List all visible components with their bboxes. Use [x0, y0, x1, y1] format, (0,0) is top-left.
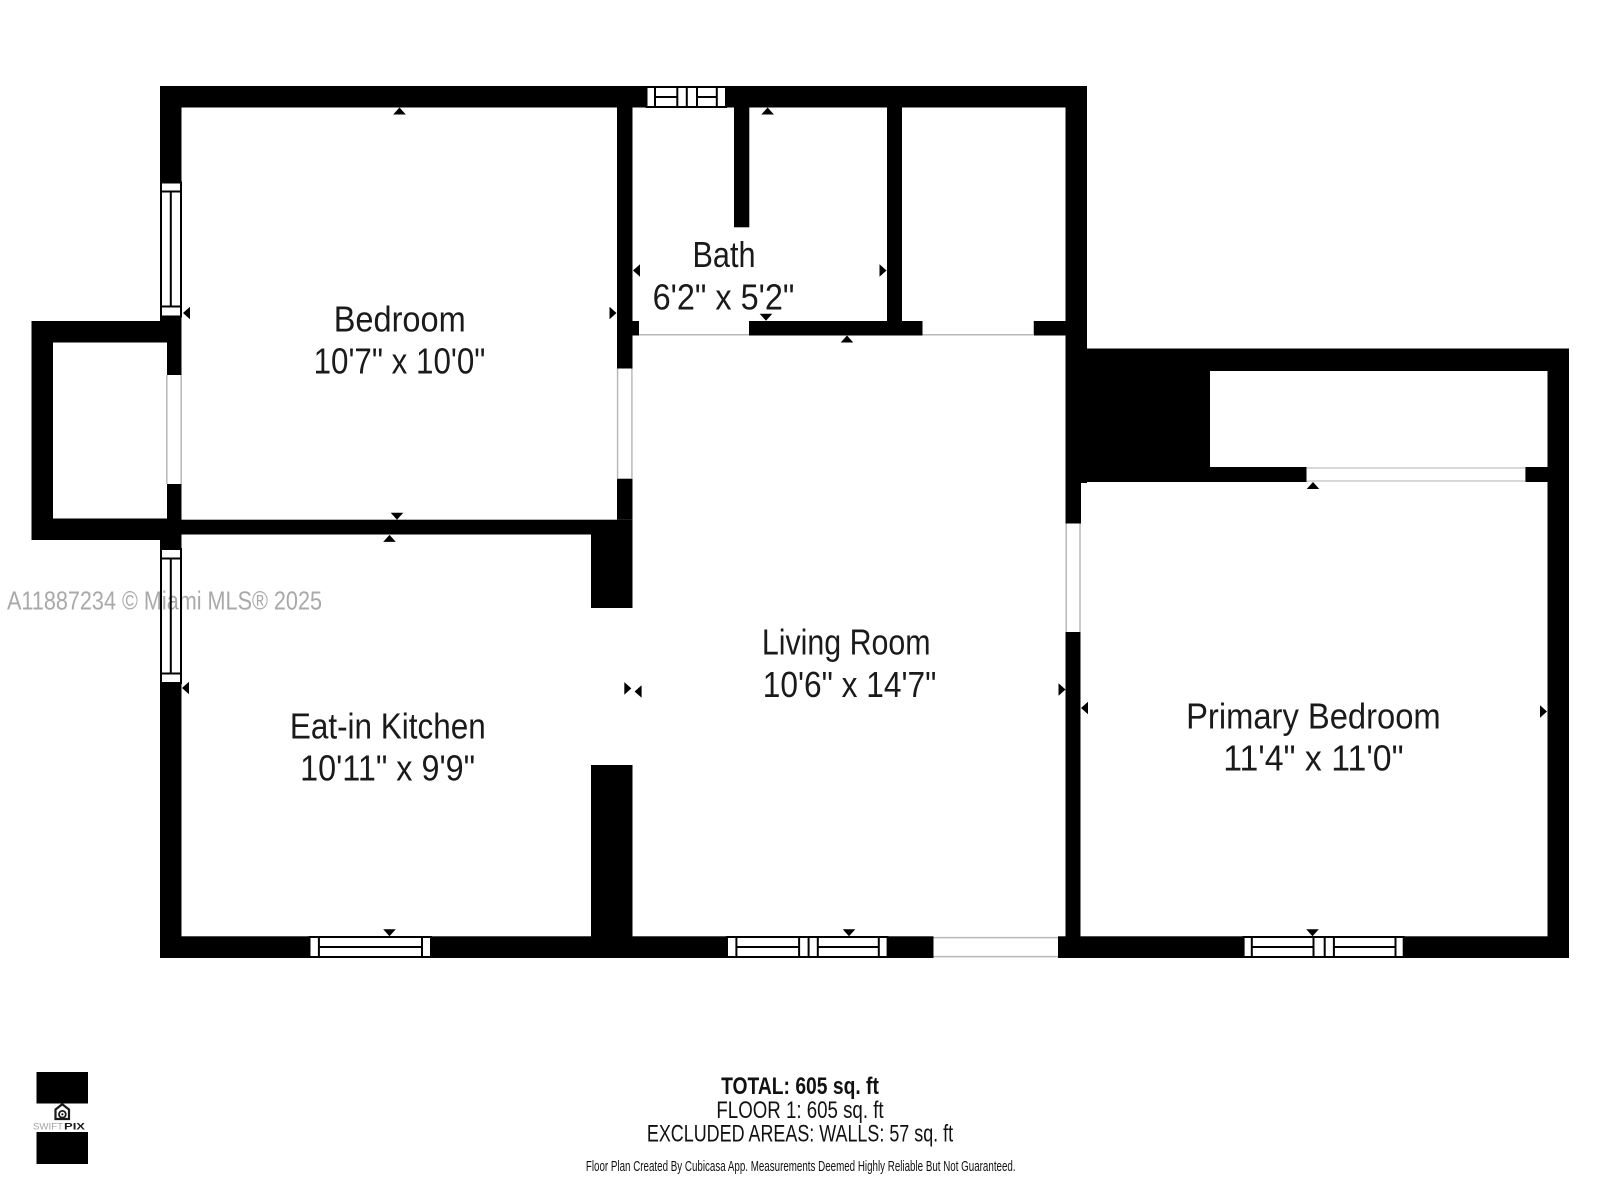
- svg-text:10'11" x 9'9": 10'11" x 9'9": [300, 748, 475, 789]
- svg-text:Floor Plan Created By Cubicasa: Floor Plan Created By Cubicasa App. Meas…: [586, 1158, 1016, 1175]
- svg-text:TOTAL: 605 sq. ft: TOTAL: 605 sq. ft: [721, 1073, 879, 1100]
- svg-text:6'2" x 5'2": 6'2" x 5'2": [653, 277, 795, 318]
- svg-text:Living Room: Living Room: [762, 622, 931, 663]
- svg-text:10'6" x 14'7": 10'6" x 14'7": [763, 664, 937, 705]
- svg-text:A11887234 © Miami MLS® 2025: A11887234 © Miami MLS® 2025: [7, 586, 322, 616]
- svg-text:Bedroom: Bedroom: [334, 298, 466, 339]
- svg-text:11'4" x 11'0": 11'4" x 11'0": [1223, 738, 1403, 779]
- svg-text:Primary Bedroom: Primary Bedroom: [1186, 695, 1441, 736]
- svg-text:EXCLUDED AREAS: WALLS: 57 sq.: EXCLUDED AREAS: WALLS: 57 sq. ft: [647, 1121, 953, 1148]
- svg-text:Bath: Bath: [693, 234, 756, 275]
- svg-text:SWIFT: SWIFT: [33, 1122, 63, 1133]
- svg-text:10'7" x 10'0": 10'7" x 10'0": [314, 341, 486, 382]
- svg-text:Eat-in Kitchen: Eat-in Kitchen: [290, 705, 486, 746]
- svg-text:PIX: PIX: [64, 1122, 86, 1133]
